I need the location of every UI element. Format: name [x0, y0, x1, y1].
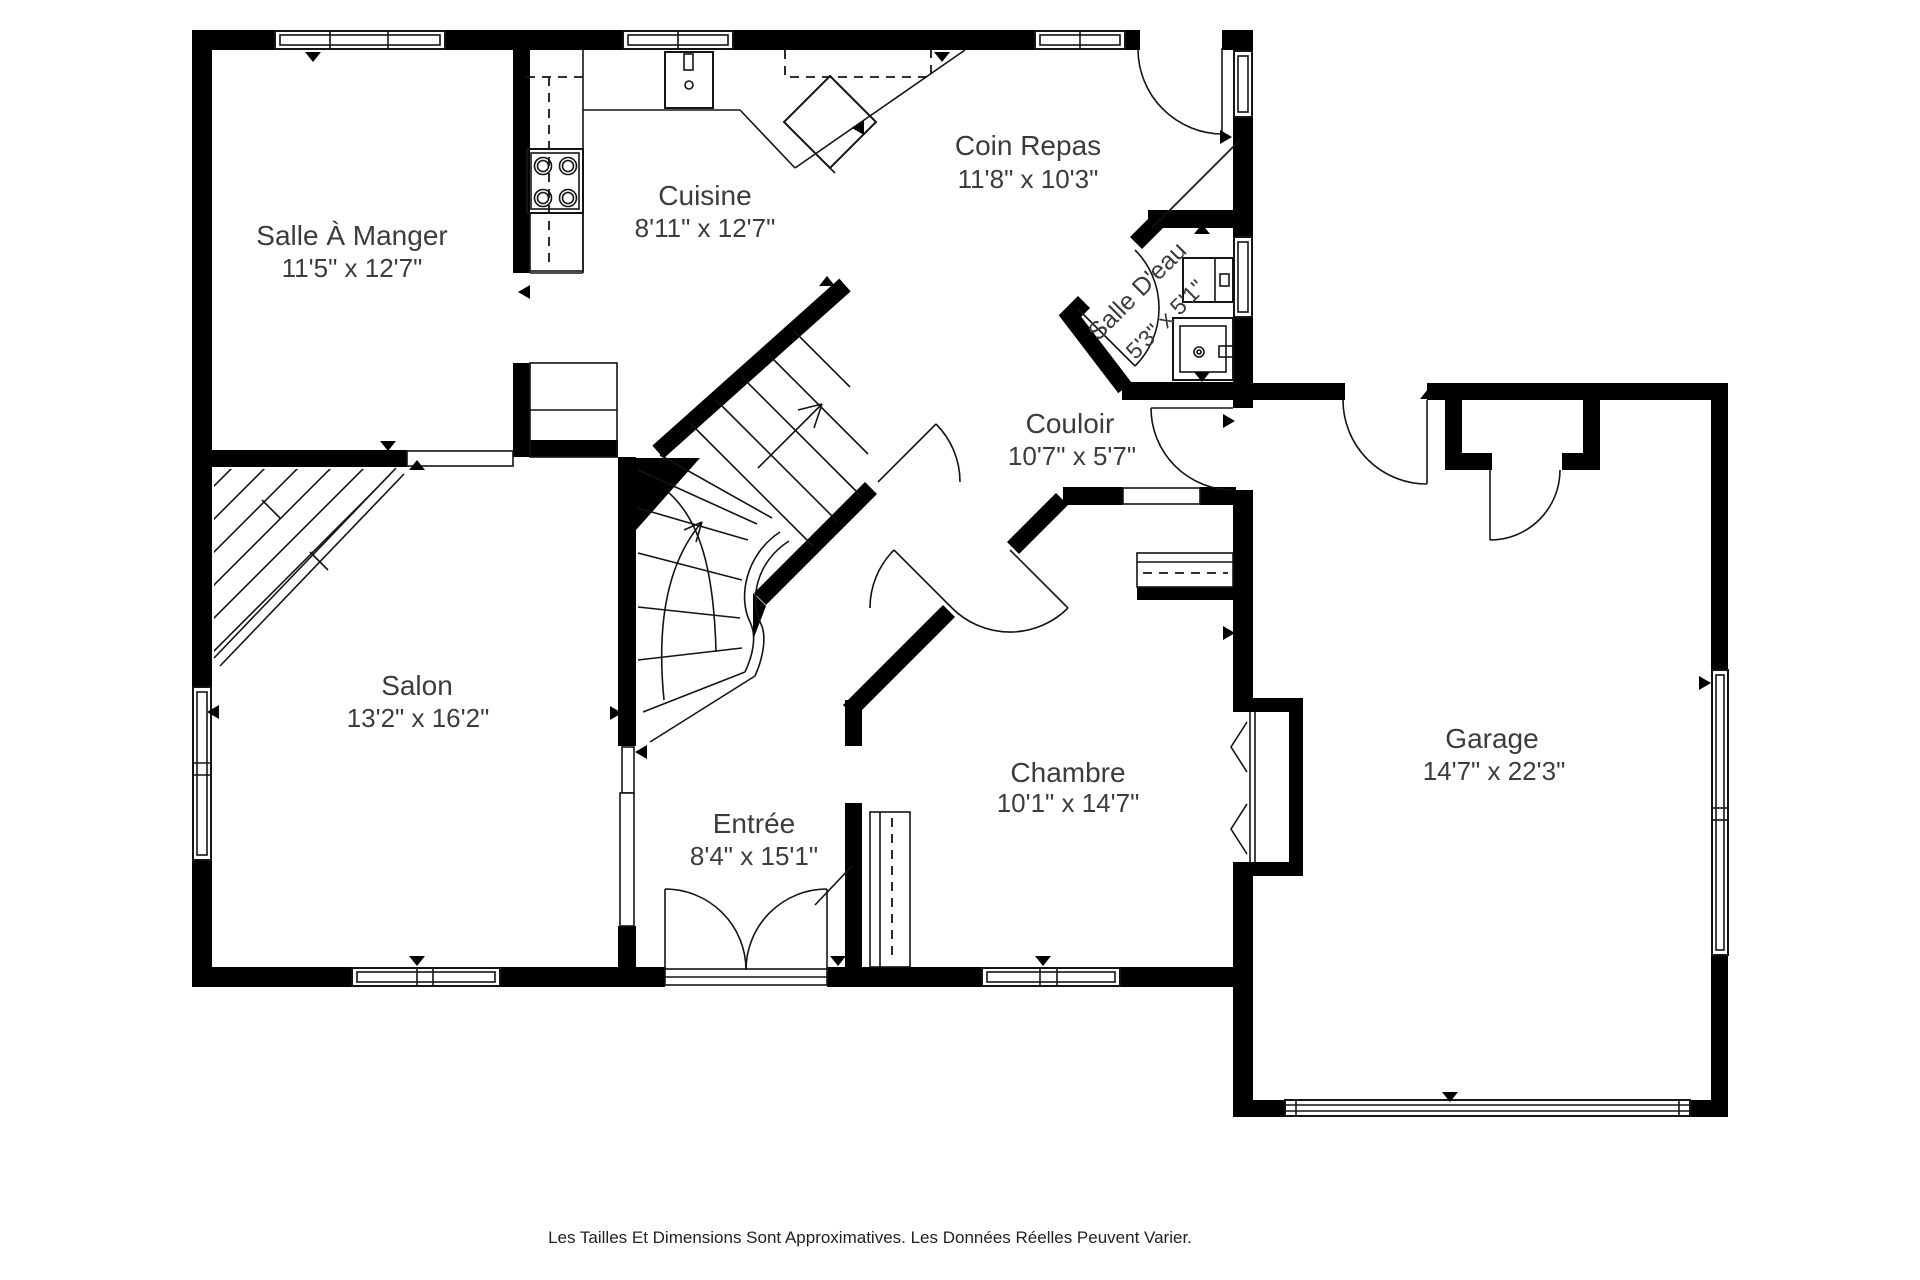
doors — [665, 48, 1560, 970]
kitchen-fixtures — [526, 50, 965, 457]
door-couloir-garage — [1151, 408, 1233, 490]
stair-arrow-straight — [758, 404, 822, 468]
entree-closet — [870, 812, 910, 967]
room-label-salle-a-manger: Salle À Manger — [256, 220, 447, 251]
room-dims-entree: 8'4" x 15'1" — [690, 841, 818, 871]
room-dims-coin-repas: 11'8" x 10'3" — [958, 164, 1099, 194]
dimension-markers — [198, 52, 1711, 1102]
stove-icon — [527, 149, 583, 213]
window-salle-deau — [1234, 237, 1252, 317]
kitchen-sink-icon — [665, 52, 713, 108]
floor-plan-svg: Salle À Manger 11'5" x 12'7" Cuisine 8'1… — [0, 0, 1920, 1280]
door-chambre — [952, 550, 1068, 632]
floor-plan-page: Salle À Manger 11'5" x 12'7" Cuisine 8'1… — [0, 0, 1920, 1280]
room-dims-salle-a-manger: 11'5" x 12'7" — [282, 253, 423, 283]
door-coin-repas-exterior — [1138, 48, 1222, 134]
room-dims-cuisine: 8'11" x 12'7" — [635, 213, 776, 243]
door-garage-exterior — [1343, 400, 1427, 484]
room-dims-garage: 14'7" x 22'3" — [1423, 756, 1566, 786]
door-couloir-swing — [870, 550, 952, 608]
fireplace — [1231, 698, 1303, 876]
room-dims-couloir: 10'7" x 5'7" — [1008, 441, 1136, 471]
front-door-sill — [665, 969, 827, 985]
room-label-couloir: Couloir — [1026, 408, 1115, 439]
room-labels: Salle À Manger 11'5" x 12'7" Cuisine 8'1… — [256, 130, 1565, 871]
room-label-entree: Entrée — [713, 808, 796, 839]
room-dims-salon: 13'2" x 16'2" — [347, 703, 490, 733]
footer-disclaimer: Les Tailles Et Dimensions Sont Approxima… — [548, 1228, 1192, 1247]
window-salon-bottom — [352, 968, 500, 986]
window-coin-repas-right — [1234, 51, 1252, 117]
window-coin-repas-top — [1035, 31, 1125, 49]
room-dims-chambre: 10'1" x 14'7" — [997, 788, 1140, 818]
window-cuisine — [623, 31, 733, 49]
room-label-chambre: Chambre — [1010, 757, 1125, 788]
room-label-cuisine: Cuisine — [658, 180, 751, 211]
room-label-garage: Garage — [1445, 723, 1538, 754]
room-label-coin-repas: Coin Repas — [955, 130, 1101, 161]
window-salon-left — [193, 687, 211, 860]
window-garage-right — [1712, 670, 1728, 955]
window-salle-a-manger — [275, 31, 445, 49]
vanity-sink-icon — [1173, 318, 1233, 380]
room-label-salon: Salon — [381, 670, 453, 701]
window-chambre-bottom — [982, 968, 1120, 986]
couloir-closet — [1137, 553, 1233, 587]
door-garage-niche — [1490, 470, 1560, 540]
garage-door — [1285, 1100, 1690, 1116]
door-stairs-couloir — [878, 424, 960, 482]
door-front-double — [665, 889, 827, 970]
